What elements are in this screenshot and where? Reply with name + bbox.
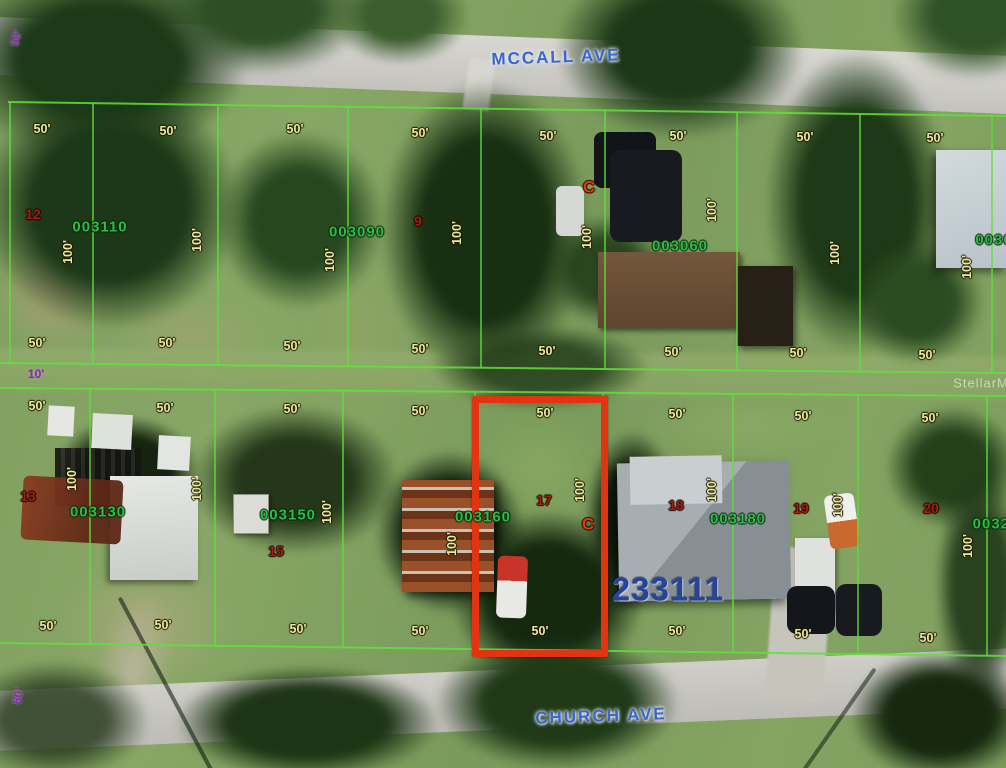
dimension-label: 50'	[290, 623, 307, 636]
offset-dim-bottom-left: 50'	[11, 687, 26, 705]
dimension-label: 50'	[29, 400, 46, 413]
dimension-label: 50'	[29, 337, 46, 350]
dimension-label: 100'	[66, 467, 79, 491]
dimension-label: 50'	[412, 405, 429, 418]
dimension-label: 100'	[446, 532, 459, 556]
street-label-mccall-ave: MCCALL AVE	[491, 46, 621, 68]
dimension-label: 50'	[670, 130, 687, 143]
dimension-label: 50'	[412, 127, 429, 140]
lot-number-20: 20	[923, 501, 939, 515]
c-marker-top: C	[583, 179, 595, 196]
lot-number-15: 15	[268, 544, 284, 558]
parcel-id-003130: 003130	[70, 505, 126, 520]
dimension-label: 50'	[34, 123, 51, 136]
dimension-label: 50'	[795, 410, 812, 423]
parcel-id-003090: 003090	[329, 225, 385, 240]
offset-dim-alley: 10'	[28, 368, 44, 380]
dimension-label: 100'	[961, 255, 974, 279]
dimension-label: 50'	[537, 407, 554, 420]
dimension-label: 100'	[706, 478, 719, 502]
parcel-id-003060: 003060	[652, 239, 708, 254]
dimension-label: 50'	[919, 349, 936, 362]
lot-number-17: 17	[536, 493, 552, 507]
lot-number-13: 13	[20, 489, 36, 503]
dimension-label: 50'	[157, 402, 174, 415]
dimension-label: 50'	[795, 628, 812, 641]
dimension-label: 50'	[920, 632, 937, 645]
dimension-label: 50'	[412, 625, 429, 638]
dimension-label: 100'	[191, 477, 204, 501]
offset-dim-top-left: 50'	[8, 29, 24, 48]
lot-number-19: 19	[793, 501, 809, 515]
dimension-label: 100'	[191, 228, 204, 252]
labels-layer: 50'10'50'MCCALL AVECHURCH AVEStellarMLS2…	[0, 0, 1006, 768]
parcel-id-003180: 003180	[710, 512, 766, 527]
dimension-label: 50'	[669, 625, 686, 638]
dimension-label: 50'	[790, 347, 807, 360]
dimension-label: 50'	[540, 130, 557, 143]
parcel-id-003150: 003150	[260, 508, 316, 523]
dimension-label: 100'	[574, 478, 587, 502]
dimension-label: 100'	[962, 534, 975, 558]
dimension-label: 50'	[669, 408, 686, 421]
dimension-label: 100'	[832, 493, 845, 517]
plat-number: 233111	[612, 573, 724, 606]
lot-number-12: 12	[25, 207, 41, 221]
lot-number-9: 9	[414, 214, 422, 228]
dimension-label: 50'	[284, 403, 301, 416]
dimension-label: 100'	[321, 500, 334, 524]
dimension-label: 100'	[451, 221, 464, 245]
dimension-label: 50'	[665, 346, 682, 359]
parcel-id-003160: 003160	[455, 510, 511, 525]
dimension-label: 50'	[922, 412, 939, 425]
dimension-label: 50'	[927, 132, 944, 145]
dimension-label: 50'	[160, 125, 177, 138]
dimension-label: 100'	[324, 248, 337, 272]
dimension-label: 50'	[40, 620, 57, 633]
parcel-id-0030-clipped: 0030	[975, 233, 1006, 248]
stellar-mls-watermark: StellarMLS	[953, 377, 1006, 390]
dimension-label: 50'	[412, 343, 429, 356]
dimension-label: 50'	[159, 337, 176, 350]
dimension-label: 50'	[539, 345, 556, 358]
parcel-id-00320-clipped: 00320	[973, 517, 1006, 532]
dimension-label: 100'	[829, 241, 842, 265]
parcel-id-003110: 003110	[72, 220, 127, 235]
lot-number-18: 18	[668, 498, 684, 512]
dimension-label: 50'	[287, 123, 304, 136]
dimension-label: 50'	[155, 619, 172, 632]
aerial-parcel-map: 50'10'50'MCCALL AVECHURCH AVEStellarMLS2…	[0, 0, 1006, 768]
dimension-label: 100'	[581, 225, 594, 249]
c-marker-bottom: C	[582, 516, 594, 533]
dimension-label: 50'	[284, 340, 301, 353]
street-label-church-ave: CHURCH AVE	[535, 705, 667, 727]
dimension-label: 100'	[62, 240, 75, 264]
dimension-label: 50'	[532, 625, 549, 638]
dimension-label: 100'	[706, 198, 719, 222]
dimension-label: 50'	[797, 131, 814, 144]
